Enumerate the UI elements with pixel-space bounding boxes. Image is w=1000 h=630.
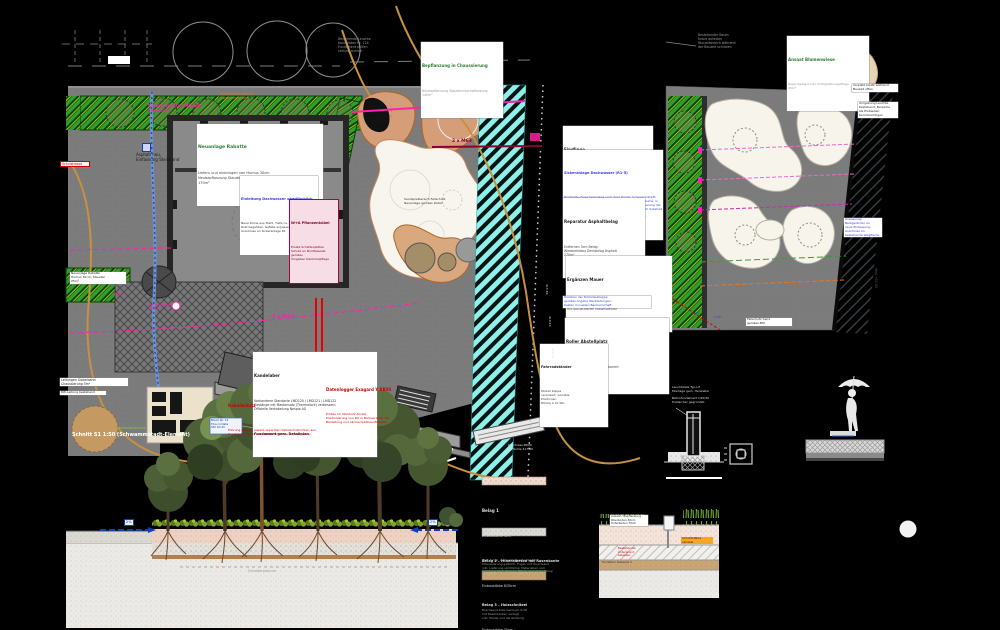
label-planum: Schotterplanum <box>248 569 298 574</box>
tree-tag: Baum Nr. 12 Tilia cordata StU 40-45 <box>211 419 241 430</box>
legend-item-3: Belag 3 – Holzschnitzel Einbaustärke 30c… <box>482 582 574 630</box>
legend-item-3-title: Belag 3 – Holzschnitzel <box>482 603 574 608</box>
soil-top-note: Ansaat / Bepflanzung Oberboden 30cm Unte… <box>610 515 648 526</box>
legend-item-2-title: Belag 2 – Mineralbeton mit Rasenkante <box>482 559 574 564</box>
canal-strip <box>470 85 544 480</box>
detail-box-2: Umgebung Leuchte bestehend, Bereiche als… <box>858 102 898 118</box>
label-kabelschutz: Kabelschutz Führung Kabel in jeweils sep… <box>228 382 328 457</box>
note-existing-light: Bestehende Leuchte Kandelaber Nr. 124 Fu… <box>338 37 386 54</box>
label-pflanzkuebel-body: Ersatz Schattenplätze Schutz an Nordfass… <box>291 246 337 262</box>
statue-detail <box>806 376 884 461</box>
label-chaussierung-body: Neubepflanzung Staudenmischpflanzung 140… <box>422 89 502 97</box>
soil-red-note: Bestehender Untergrund belassen <box>618 547 648 558</box>
label-chaussierung-title: Bepflanzung in Chaussierung <box>422 63 502 68</box>
detail-dim-2: 1.00 <box>714 316 721 320</box>
detail-green-label: Ansaat Blumenwiese Regio-Saatgut inkl. F… <box>787 36 869 111</box>
canal-station-3: 419.00 <box>550 348 554 359</box>
detail-dim-1: 1.00 <box>692 312 699 316</box>
landscape-plan-sheet: Schulstrasse Bestehende Leuchte Kandelab… <box>0 0 1000 630</box>
label-rabatte-title: Neuanlage Rabatte <box>198 145 322 151</box>
label-sand-note: Sandspielbereich Fallschutz Neuanlage ge… <box>404 198 458 206</box>
label-spindelschacht: Spindelschacht D=600 <box>148 303 192 311</box>
bollard-plan-detail <box>724 444 752 464</box>
label-orange-note: Bestehende Leitung Spannung prüfen <box>221 92 267 100</box>
slope-label-right: 2% <box>428 519 438 526</box>
detail-gray-note: Bestehender Baum Krone aufasten Wurzelbe… <box>698 33 754 50</box>
label-asphalt: Asphalt neu, Einfassung Steinband <box>136 152 182 162</box>
detail-fallschutz: Fallschutz Sand gemäss BfU <box>746 318 792 326</box>
label-2xm63: 2 x M63 <box>452 139 480 145</box>
label-fahrradstaender-body: Modell Kappa verankert, variable Positio… <box>541 390 607 406</box>
soil-orange-note: Schichtstärke variabel <box>681 537 713 544</box>
bollard-note-2: Betonfundament C25/30 frostsicher gegrün… <box>672 397 722 405</box>
scale-dot <box>900 521 917 538</box>
label-kabelschutz-body: Führung Kabel in jeweils separaten Kabel… <box>228 429 328 437</box>
label-pflanzkuebel: W+A Pflanzenkübel Ersatz Schattenplätze … <box>289 199 339 284</box>
legend-item-1-title: Belag 1 <box>482 508 574 513</box>
slope-label-left: 2% <box>124 519 134 526</box>
label-fahrradstaender-title: Fahrradständer <box>541 365 607 370</box>
label-mauer-title: Ergänzen Mauer <box>567 277 671 282</box>
soil-base-note: Fundation Kiessand 2 <box>602 561 646 565</box>
bollard-note-1: Leuchtstele Typ Lif Montage gem. Herstel… <box>672 386 722 394</box>
label-leuchte: Kerzenleuchte LMD119 versetzen <box>148 103 204 113</box>
detail-blue-note: Anpassung Belagsränder an neue Einfassun… <box>844 218 882 237</box>
asphalt-symbol-icon <box>142 143 151 152</box>
label-kabelschutz-title: Kabelschutz <box>228 403 328 408</box>
bollard-detail <box>664 408 752 478</box>
label-sickeranlage-title: Sickeranlage Dachwasser (R1-5) <box>564 171 662 176</box>
detail-box-1: Vorplatz bleibt während Bauzeit offen <box>852 84 898 92</box>
label-sickerband: Leitungen Sickerband Chaussierung 5m² <box>60 378 128 386</box>
label-datenlogger-title: Datenlogger Exagard Y RB50 <box>326 387 432 392</box>
detail-weg-label: Weg +52.00 <box>874 268 878 288</box>
label-rabatte-small: Neuanlage Rabatte Humus 30cm, Stauden 25… <box>70 272 126 284</box>
label-kanal-note: Rückbau der Rückstauklappe gemäss Angabe… <box>563 296 651 308</box>
label-m85: M85 <box>114 292 132 297</box>
label-2xm16: 2 x M16 <box>272 314 302 321</box>
label-datenlogger: Datenlogger Exagard Y RB50 Einbau im Sta… <box>326 366 432 445</box>
label-rw-note: RW-Leitung bestehend <box>60 391 106 395</box>
section-title: Schnitt S1 1:50 (Schwammstadt-Element) <box>72 432 222 439</box>
label-canal-note: Durchlass Ø600 OK Sohle 417.80 <box>508 444 546 452</box>
canal-station-1: 415.80 <box>544 284 548 295</box>
street-label: Schulstrasse <box>60 161 90 167</box>
detail-green-title: Ansaat Blumenwiese <box>788 57 868 62</box>
label-datenlogger-body: Einbau im Stahlrohr-Sockel Positionierun… <box>326 413 432 425</box>
label-reparatur-title: Reparatur Asphaltbelag <box>564 219 644 224</box>
label-pflanzkuebel-title: W+A Pflanzenkübel <box>291 221 337 226</box>
label-chaussierung: Bepflanzung in Chaussierung Neubepflanzu… <box>421 42 503 118</box>
canal-station-2: 418.40 <box>547 316 551 327</box>
section-bestand: Bestandesbäume <box>118 426 162 430</box>
